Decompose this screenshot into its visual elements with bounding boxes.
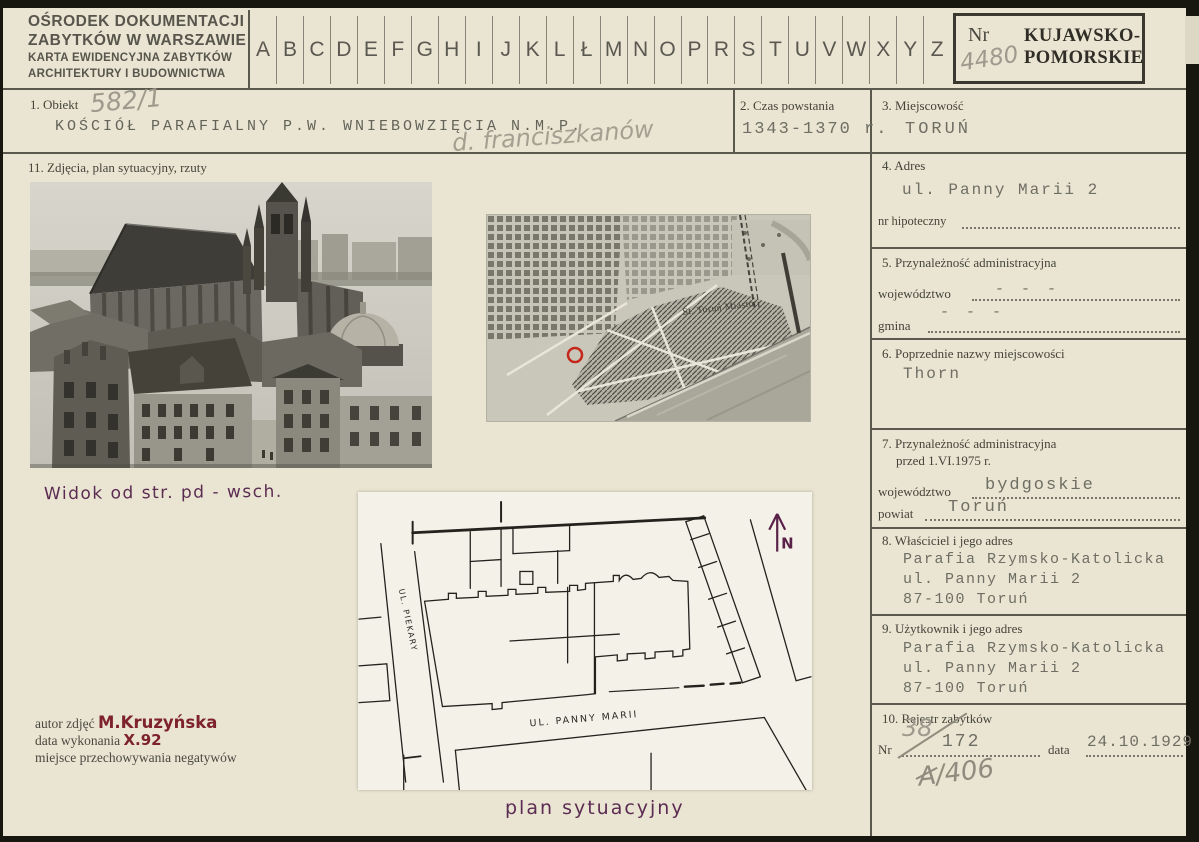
powiat-value: Toruń	[948, 498, 1009, 517]
field-przynaleznosc1975-label1: 7. Przynależność administracyjna	[882, 436, 1056, 452]
alphabet-letter: E	[358, 16, 385, 84]
field-wlasciciel-label: 8. Właściciel i jego adres	[882, 533, 1013, 549]
document-card-scan: OŚRODEK DOKUMENTACJI ZABYTKÓW W WARSZAWI…	[0, 0, 1199, 842]
wojewodztwo-line	[972, 299, 1180, 301]
row1-divider	[733, 90, 735, 152]
section4-rule	[872, 247, 1186, 249]
negatywy-label: miejsce przechowywania negatywów	[35, 749, 237, 766]
alphabet-letter: T	[762, 16, 789, 84]
alphabet-letter: G	[412, 16, 439, 84]
data-wykonania-value: X.92	[123, 731, 161, 749]
uzytkownik-line3: 87-100 Toruń	[903, 679, 1029, 699]
photo-caption: Widok od str. pd - wsch.	[44, 482, 283, 504]
institution-line2: ZABYTKÓW W WARSZAWIE	[28, 31, 246, 50]
section8-rule	[872, 614, 1186, 616]
uzytkownik-line2: ul. Panny Marii 2	[903, 659, 1082, 679]
section5-rule	[872, 338, 1186, 340]
row1-bottom-rule	[3, 152, 1186, 154]
stamp-line2: POMORSKIE	[1024, 47, 1144, 69]
nr-hipoteczny-line	[962, 227, 1180, 229]
map-graphic: St. Toruń Miasto	[487, 215, 810, 421]
adres-value: ul. Panny Marii 2	[902, 180, 1099, 200]
card-type-line2: ARCHITEKTURY I BUDOWNICTWA	[28, 67, 246, 82]
field-adres-label: 4. Adres	[882, 158, 925, 174]
stamp-line1: KUJAWSKO-	[1024, 25, 1144, 47]
header-institution: OŚRODEK DOKUMENTACJI ZABYTKÓW W WARSZAWI…	[28, 12, 246, 82]
alphabet-letter: L	[547, 16, 574, 84]
alphabet-letter: Ł	[574, 16, 601, 84]
data-wykonania-label: data wykonania	[35, 733, 120, 748]
plan-caption: plan sytuacyjny	[505, 797, 685, 819]
section6-rule	[872, 428, 1186, 430]
wojewodztwo-1975-label: województwo	[878, 484, 951, 500]
wlasciciel-line1: Parafia Rzymsko-Katolicka	[903, 550, 1166, 570]
alphabet-letter: Z	[924, 16, 950, 84]
nr-hipoteczny-label: nr hipoteczny	[878, 214, 946, 229]
gmina-label: gmina	[878, 318, 911, 334]
photo-scene	[30, 182, 432, 468]
rejestr-data-label: data	[1048, 742, 1070, 758]
field-zdjecia-label: 11. Zdjęcia, plan sytuacyjny, rzuty	[28, 160, 207, 176]
field-przynaleznosc1975-label2: przed 1.VI.1975 r.	[896, 453, 991, 469]
alphabet-letter: C	[304, 16, 331, 84]
registry-number-box: Nr 4480 KUJAWSKO- POMORSKIE	[953, 13, 1145, 84]
powiat-line	[925, 519, 1180, 521]
gmina-line	[928, 331, 1180, 333]
field-uzytkownik-label: 9. Użytkownik i jego adres	[882, 621, 1022, 637]
wlasciciel-line2: ul. Panny Marii 2	[903, 570, 1082, 590]
site-plan: UL. PIEKARY UL. PANNY MARII N	[358, 492, 812, 790]
card-edge-tab	[1185, 16, 1199, 64]
main-column-divider	[870, 90, 872, 836]
powiat-label: powiat	[878, 506, 913, 522]
autor-label: autor zdjęć	[35, 716, 95, 731]
alphabet-letter: W	[843, 16, 870, 84]
site-plan-drawing: UL. PIEKARY UL. PANNY MARII N	[358, 492, 812, 790]
poprzednie-value: Thorn	[903, 365, 961, 383]
alphabet-letter: J	[493, 16, 520, 84]
wojewodztwo-label: województwo	[878, 286, 951, 302]
card-type-line1: KARTA EWIDENCYJNA ZABYTKÓW	[28, 51, 246, 66]
field-miejscowosc-label: 3. Miejscowość	[882, 98, 964, 114]
uzytkownik-line1: Parafia Rzymsko-Katolicka	[903, 639, 1166, 659]
institution-line1: OŚRODEK DOKUMENTACJI	[28, 12, 246, 31]
field-przynaleznosc-label: 5. Przynależność administracyjna	[882, 255, 1056, 271]
alphabet-letter: X	[870, 16, 897, 84]
nr-label: Nr	[968, 24, 989, 47]
city-map: St. Toruń Miasto	[487, 215, 810, 421]
alphabet-row: ABCDEFGHIJKLŁMNOPRSTUVWXYZ	[250, 12, 950, 88]
header-rule	[3, 88, 1186, 90]
voivodeship-stamp: KUJAWSKO- POMORSKIE	[1024, 25, 1144, 69]
alphabet-letter: N	[628, 16, 655, 84]
alphabet-letter: B	[277, 16, 304, 84]
rejestr-nr-value: 172	[942, 732, 980, 752]
wlasciciel-line3: 87-100 Toruń	[903, 590, 1029, 610]
north-label: N	[781, 535, 793, 553]
autor-value: M.Kruzyńska	[98, 713, 217, 732]
alphabet-letter: Y	[897, 16, 924, 84]
alphabet-letter: O	[655, 16, 682, 84]
church-photograph	[30, 182, 432, 468]
alphabet-letter: D	[331, 16, 358, 84]
rejestr-data-value: 24.10.1929 r.	[1087, 733, 1199, 751]
rejestr-nr-label: Nr	[878, 742, 892, 758]
field-rejestr-label: 10. Rejestr zabytków	[882, 711, 992, 727]
street-label-piekary: UL. PIEKARY	[397, 588, 419, 653]
wojewodztwo-value: - - -	[995, 281, 1060, 298]
alphabet-letter: R	[708, 16, 735, 84]
alphabet-letter: H	[439, 16, 466, 84]
gmina-value: - - -	[940, 304, 1005, 321]
alphabet-letter: S	[735, 16, 762, 84]
czas-value: 1343-1370 r.	[742, 120, 888, 139]
alphabet-letter: P	[682, 16, 709, 84]
rejestr-data-line	[1086, 755, 1183, 757]
field-obiekt-label: 1. Obiekt	[30, 97, 78, 113]
alphabet-letter: F	[385, 16, 412, 84]
author-block: autor zdjęć M.Kruzyńska data wykonania X…	[35, 714, 237, 766]
miejscowosc-value: TORUŃ	[905, 120, 971, 139]
section9-rule	[872, 703, 1186, 705]
alphabet-letter: U	[789, 16, 816, 84]
alphabet-letter: K	[520, 16, 547, 84]
section7-rule	[872, 527, 1186, 529]
alphabet-letter: A	[250, 16, 277, 84]
alphabet-letter: V	[816, 16, 843, 84]
wojewodztwo-1975-value: bydgoskie	[985, 476, 1095, 495]
alphabet-letter: I	[466, 16, 493, 84]
field-poprzednie-label: 6. Poprzednie nazwy miejscowości	[882, 346, 1065, 362]
field-czas-label: 2. Czas powstania	[740, 98, 834, 114]
street-label-panny-marii: UL. PANNY MARII	[529, 709, 639, 729]
alphabet-letter: M	[601, 16, 628, 84]
